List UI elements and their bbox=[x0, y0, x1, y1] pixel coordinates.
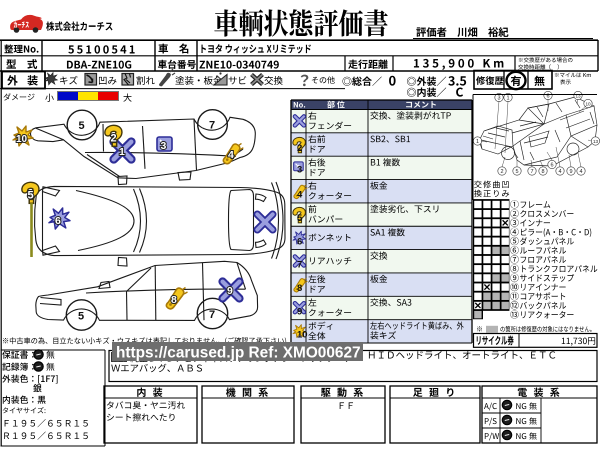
svg-text:5: 5 bbox=[515, 169, 518, 175]
svg-text:6: 6 bbox=[550, 163, 553, 169]
svg-text:5: 5 bbox=[79, 120, 85, 132]
svg-text:13: 13 bbox=[593, 139, 599, 144]
svg-text:2: 2 bbox=[500, 169, 503, 175]
svg-text:https://carused.jp Ref: XMO006: https://carused.jp Ref: XMO00627 bbox=[116, 345, 361, 362]
svg-text:7: 7 bbox=[209, 309, 215, 321]
svg-text:1: 1 bbox=[476, 139, 479, 145]
svg-text:7: 7 bbox=[530, 169, 533, 175]
svg-text:8: 8 bbox=[541, 169, 544, 175]
svg-text:4: 4 bbox=[228, 149, 234, 161]
svg-text:6: 6 bbox=[297, 236, 302, 247]
svg-text:4: 4 bbox=[558, 169, 561, 175]
svg-text:10: 10 bbox=[585, 102, 591, 107]
svg-text:1: 1 bbox=[506, 96, 509, 102]
svg-text:2: 2 bbox=[111, 133, 117, 145]
svg-text:9: 9 bbox=[227, 285, 233, 297]
svg-text:5: 5 bbox=[78, 311, 84, 323]
svg-text:5: 5 bbox=[297, 213, 303, 224]
svg-text:9: 9 bbox=[569, 169, 572, 175]
svg-text:4: 4 bbox=[297, 190, 303, 201]
svg-text:10: 10 bbox=[297, 330, 308, 341]
svg-text:5: 5 bbox=[28, 190, 34, 202]
svg-text:4: 4 bbox=[579, 169, 582, 175]
svg-text:3: 3 bbox=[497, 96, 500, 102]
svg-text:1: 1 bbox=[119, 146, 125, 158]
svg-text:8: 8 bbox=[297, 283, 302, 294]
svg-text:7: 7 bbox=[297, 260, 302, 271]
svg-text:7: 7 bbox=[209, 120, 215, 132]
svg-text:3: 3 bbox=[297, 165, 302, 176]
svg-text:2: 2 bbox=[297, 143, 302, 154]
svg-text:9: 9 bbox=[297, 306, 302, 317]
svg-text:8: 8 bbox=[171, 294, 177, 306]
svg-text:3: 3 bbox=[161, 140, 167, 152]
svg-text:6: 6 bbox=[55, 215, 61, 227]
svg-text:10: 10 bbox=[16, 134, 28, 145]
